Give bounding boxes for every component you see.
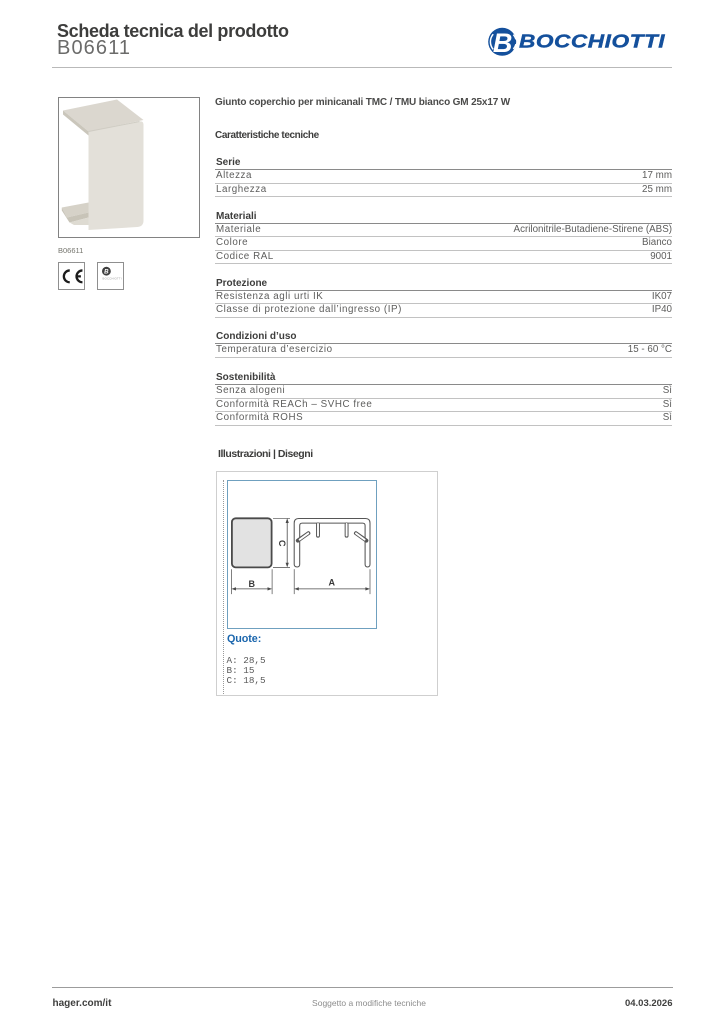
svg-text:C: C — [277, 540, 287, 547]
svg-text:BOCCHIOTTI ·: BOCCHIOTTI · — [102, 277, 123, 281]
svg-text:BOCCHIOTTI: BOCCHIOTTI — [519, 32, 666, 52]
svg-text:B: B — [249, 579, 256, 589]
svg-text:B: B — [104, 269, 109, 276]
svg-text:B: B — [493, 28, 512, 58]
svg-text:A: A — [329, 578, 336, 588]
